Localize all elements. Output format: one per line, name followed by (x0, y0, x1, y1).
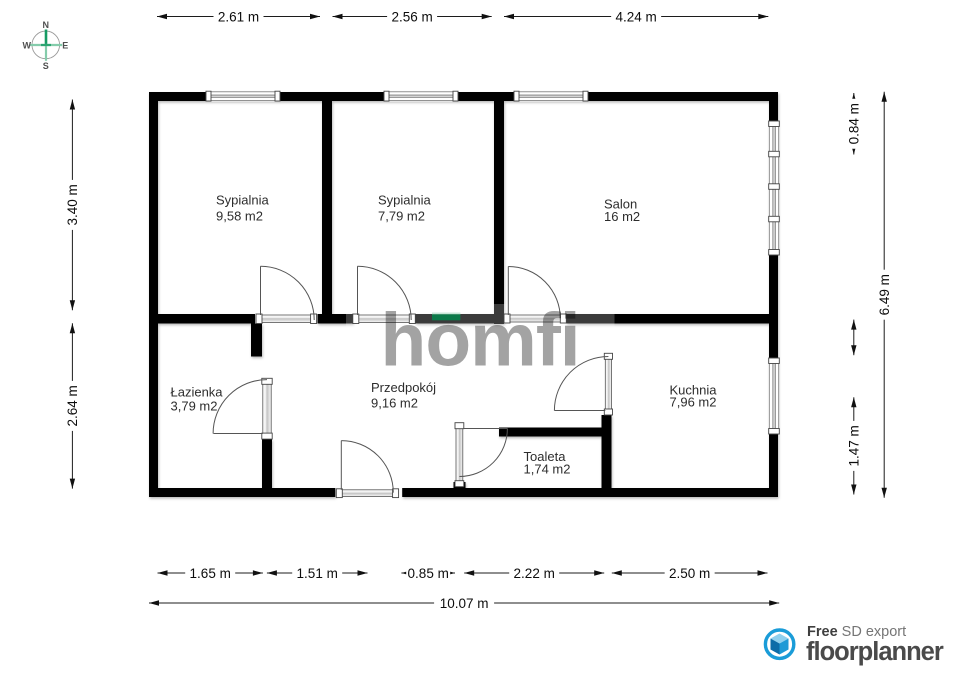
svg-text:3,79 m2: 3,79 m2 (171, 399, 218, 414)
svg-text:9,16 m2: 9,16 m2 (371, 396, 418, 411)
svg-text:S: S (43, 61, 49, 71)
svg-text:6.49 m: 6.49 m (877, 274, 892, 315)
svg-text:0.84 m: 0.84 m (847, 103, 862, 144)
svg-text:4.24 m: 4.24 m (616, 9, 657, 24)
svg-text:E: E (62, 40, 68, 50)
svg-text:N: N (43, 20, 50, 30)
svg-text:2.56 m: 2.56 m (391, 9, 432, 24)
svg-text:Sypialnia: Sypialnia (216, 192, 270, 207)
svg-text:3.40 m: 3.40 m (65, 184, 80, 225)
svg-text:2.50 m: 2.50 m (669, 566, 710, 581)
svg-text:1.51 m: 1.51 m (297, 566, 338, 581)
svg-text:2.64 m: 2.64 m (65, 385, 80, 426)
svg-text:Przedpokój: Przedpokój (371, 380, 436, 395)
svg-text:1,74 m2: 1,74 m2 (524, 462, 571, 477)
svg-text:2.22 m: 2.22 m (514, 566, 555, 581)
svg-text:Łazienka: Łazienka (171, 385, 224, 400)
svg-text:1.47 m: 1.47 m (847, 425, 862, 466)
svg-text:homfi: homfi (381, 298, 580, 382)
svg-text:7,96 m2: 7,96 m2 (670, 394, 717, 409)
svg-text:Sypialnia: Sypialnia (378, 192, 432, 207)
svg-text:1.65 m: 1.65 m (190, 566, 231, 581)
svg-text:16 m2: 16 m2 (604, 209, 640, 224)
svg-text:10.07 m: 10.07 m (440, 596, 489, 611)
svg-text:floorplanner: floorplanner (806, 638, 944, 666)
svg-text:7,79 m2: 7,79 m2 (378, 209, 425, 224)
svg-text:W: W (23, 40, 32, 50)
svg-text:2.61 m: 2.61 m (218, 9, 259, 24)
svg-text:0.85 m: 0.85 m (408, 566, 449, 581)
svg-text:9,58 m2: 9,58 m2 (216, 209, 263, 224)
